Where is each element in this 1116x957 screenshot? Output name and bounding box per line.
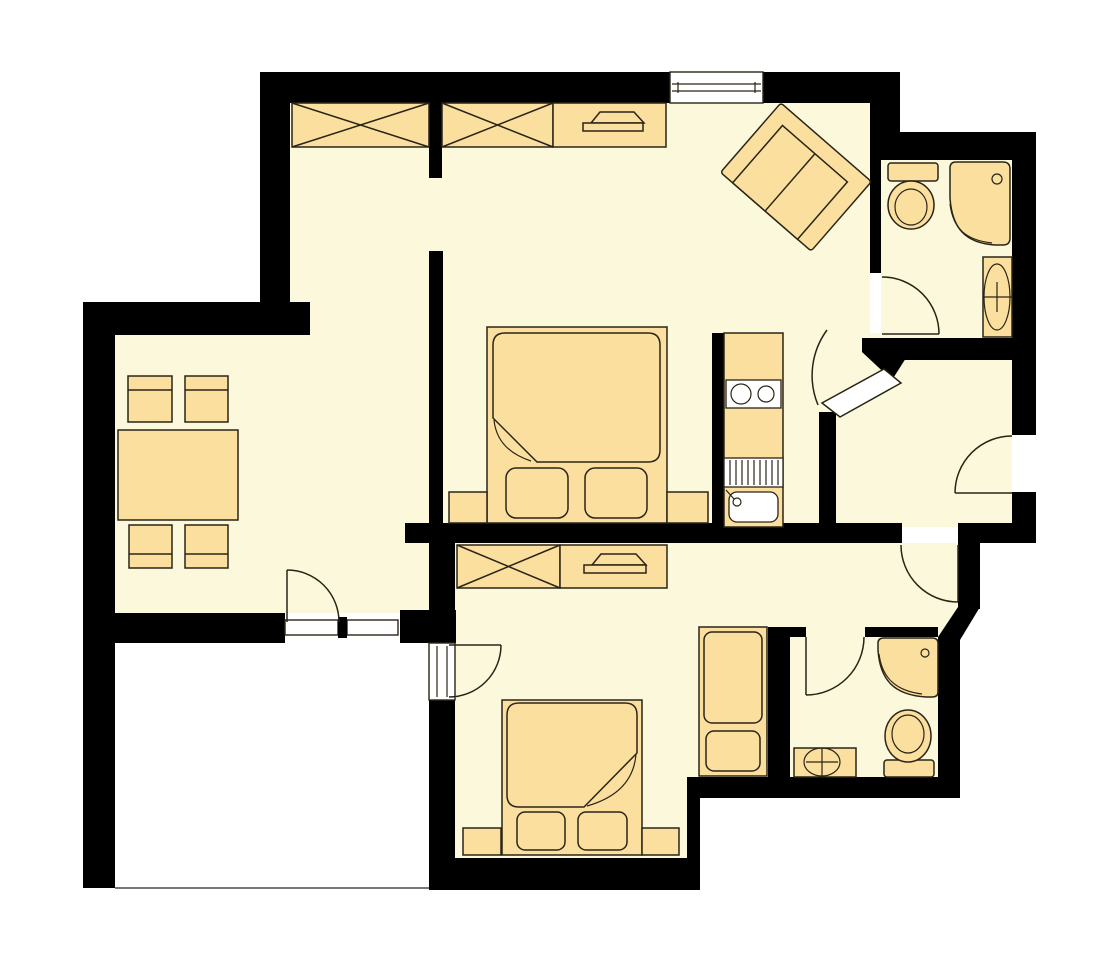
wall-east-below-entrance <box>1012 492 1036 543</box>
dining-table <box>118 430 238 520</box>
wall-bathroom-bottom-top-b <box>865 627 938 637</box>
chair-top-left <box>128 376 172 422</box>
kitchen-unit <box>724 333 783 527</box>
wall-kitchen <box>712 333 724 527</box>
floor-dining-link <box>290 300 429 340</box>
bed-1-pillow-left <box>506 468 568 518</box>
wardrobe-3 <box>457 545 560 588</box>
nightstand-1-left <box>449 492 487 523</box>
bed-1-pillow-right <box>585 468 647 518</box>
tall-cabinet <box>699 627 767 776</box>
kitchen-appliance <box>724 458 783 487</box>
wall-top-right-of-window <box>763 72 900 103</box>
dresser-tv-1 <box>553 103 666 147</box>
wall-main-left <box>260 72 290 305</box>
wall-dining-left <box>83 302 115 888</box>
bed-2-pillow-right <box>578 812 627 850</box>
toilet-bottom <box>884 710 934 777</box>
wall-bathroom-bottom-top-a <box>768 627 806 637</box>
kitchen-sink <box>726 490 778 522</box>
bed-2-pillow-left <box>517 812 565 850</box>
wall-wardrobe-divider-stub <box>429 103 442 178</box>
chair-bottom-right <box>185 525 228 568</box>
washbasin-bottom <box>794 748 856 777</box>
wall-bathroom-bottom-south <box>687 777 960 798</box>
wall-bathroom-bottom-west <box>768 627 790 777</box>
wall-bathroom-top-west <box>870 160 881 273</box>
wall-east-mid <box>958 543 980 609</box>
nightstand-2-left <box>463 828 501 855</box>
bed-2 <box>502 700 642 855</box>
nightstand-1-right <box>667 492 708 523</box>
wall-living-hall <box>819 412 836 527</box>
washbasin-top <box>983 257 1012 337</box>
wall-bedroom2-bottom <box>429 858 700 890</box>
wall-bedroom2-west-upper <box>429 543 455 643</box>
bedroom-2-terrace-window <box>429 643 455 700</box>
wardrobe-2 <box>442 103 553 147</box>
floor-plan-svg <box>0 0 1116 957</box>
nightstand-2-right <box>642 828 679 855</box>
floor-plan <box>0 0 1116 957</box>
wall-bathroom-top-north <box>870 132 1036 160</box>
wardrobe-1 <box>292 103 429 147</box>
chair-bottom-left <box>129 525 172 568</box>
dining-terrace-window <box>285 617 398 638</box>
dresser-tv-2 <box>560 545 667 588</box>
chair-top-right <box>185 376 228 422</box>
cooktop <box>726 380 781 408</box>
wall-dining-top <box>83 302 310 335</box>
wall-east-upper <box>1012 132 1036 435</box>
top-wall-window <box>670 72 763 103</box>
wall-bathroom-bottom-east <box>938 637 960 798</box>
bed-1-mattress <box>493 333 660 462</box>
wall-long-interior <box>429 251 443 523</box>
toilet-top <box>888 163 938 229</box>
wall-step-corner <box>870 100 900 135</box>
wall-dining-bottom <box>83 613 285 643</box>
wall-top-left-of-window <box>260 72 670 103</box>
bed-1 <box>487 327 667 523</box>
